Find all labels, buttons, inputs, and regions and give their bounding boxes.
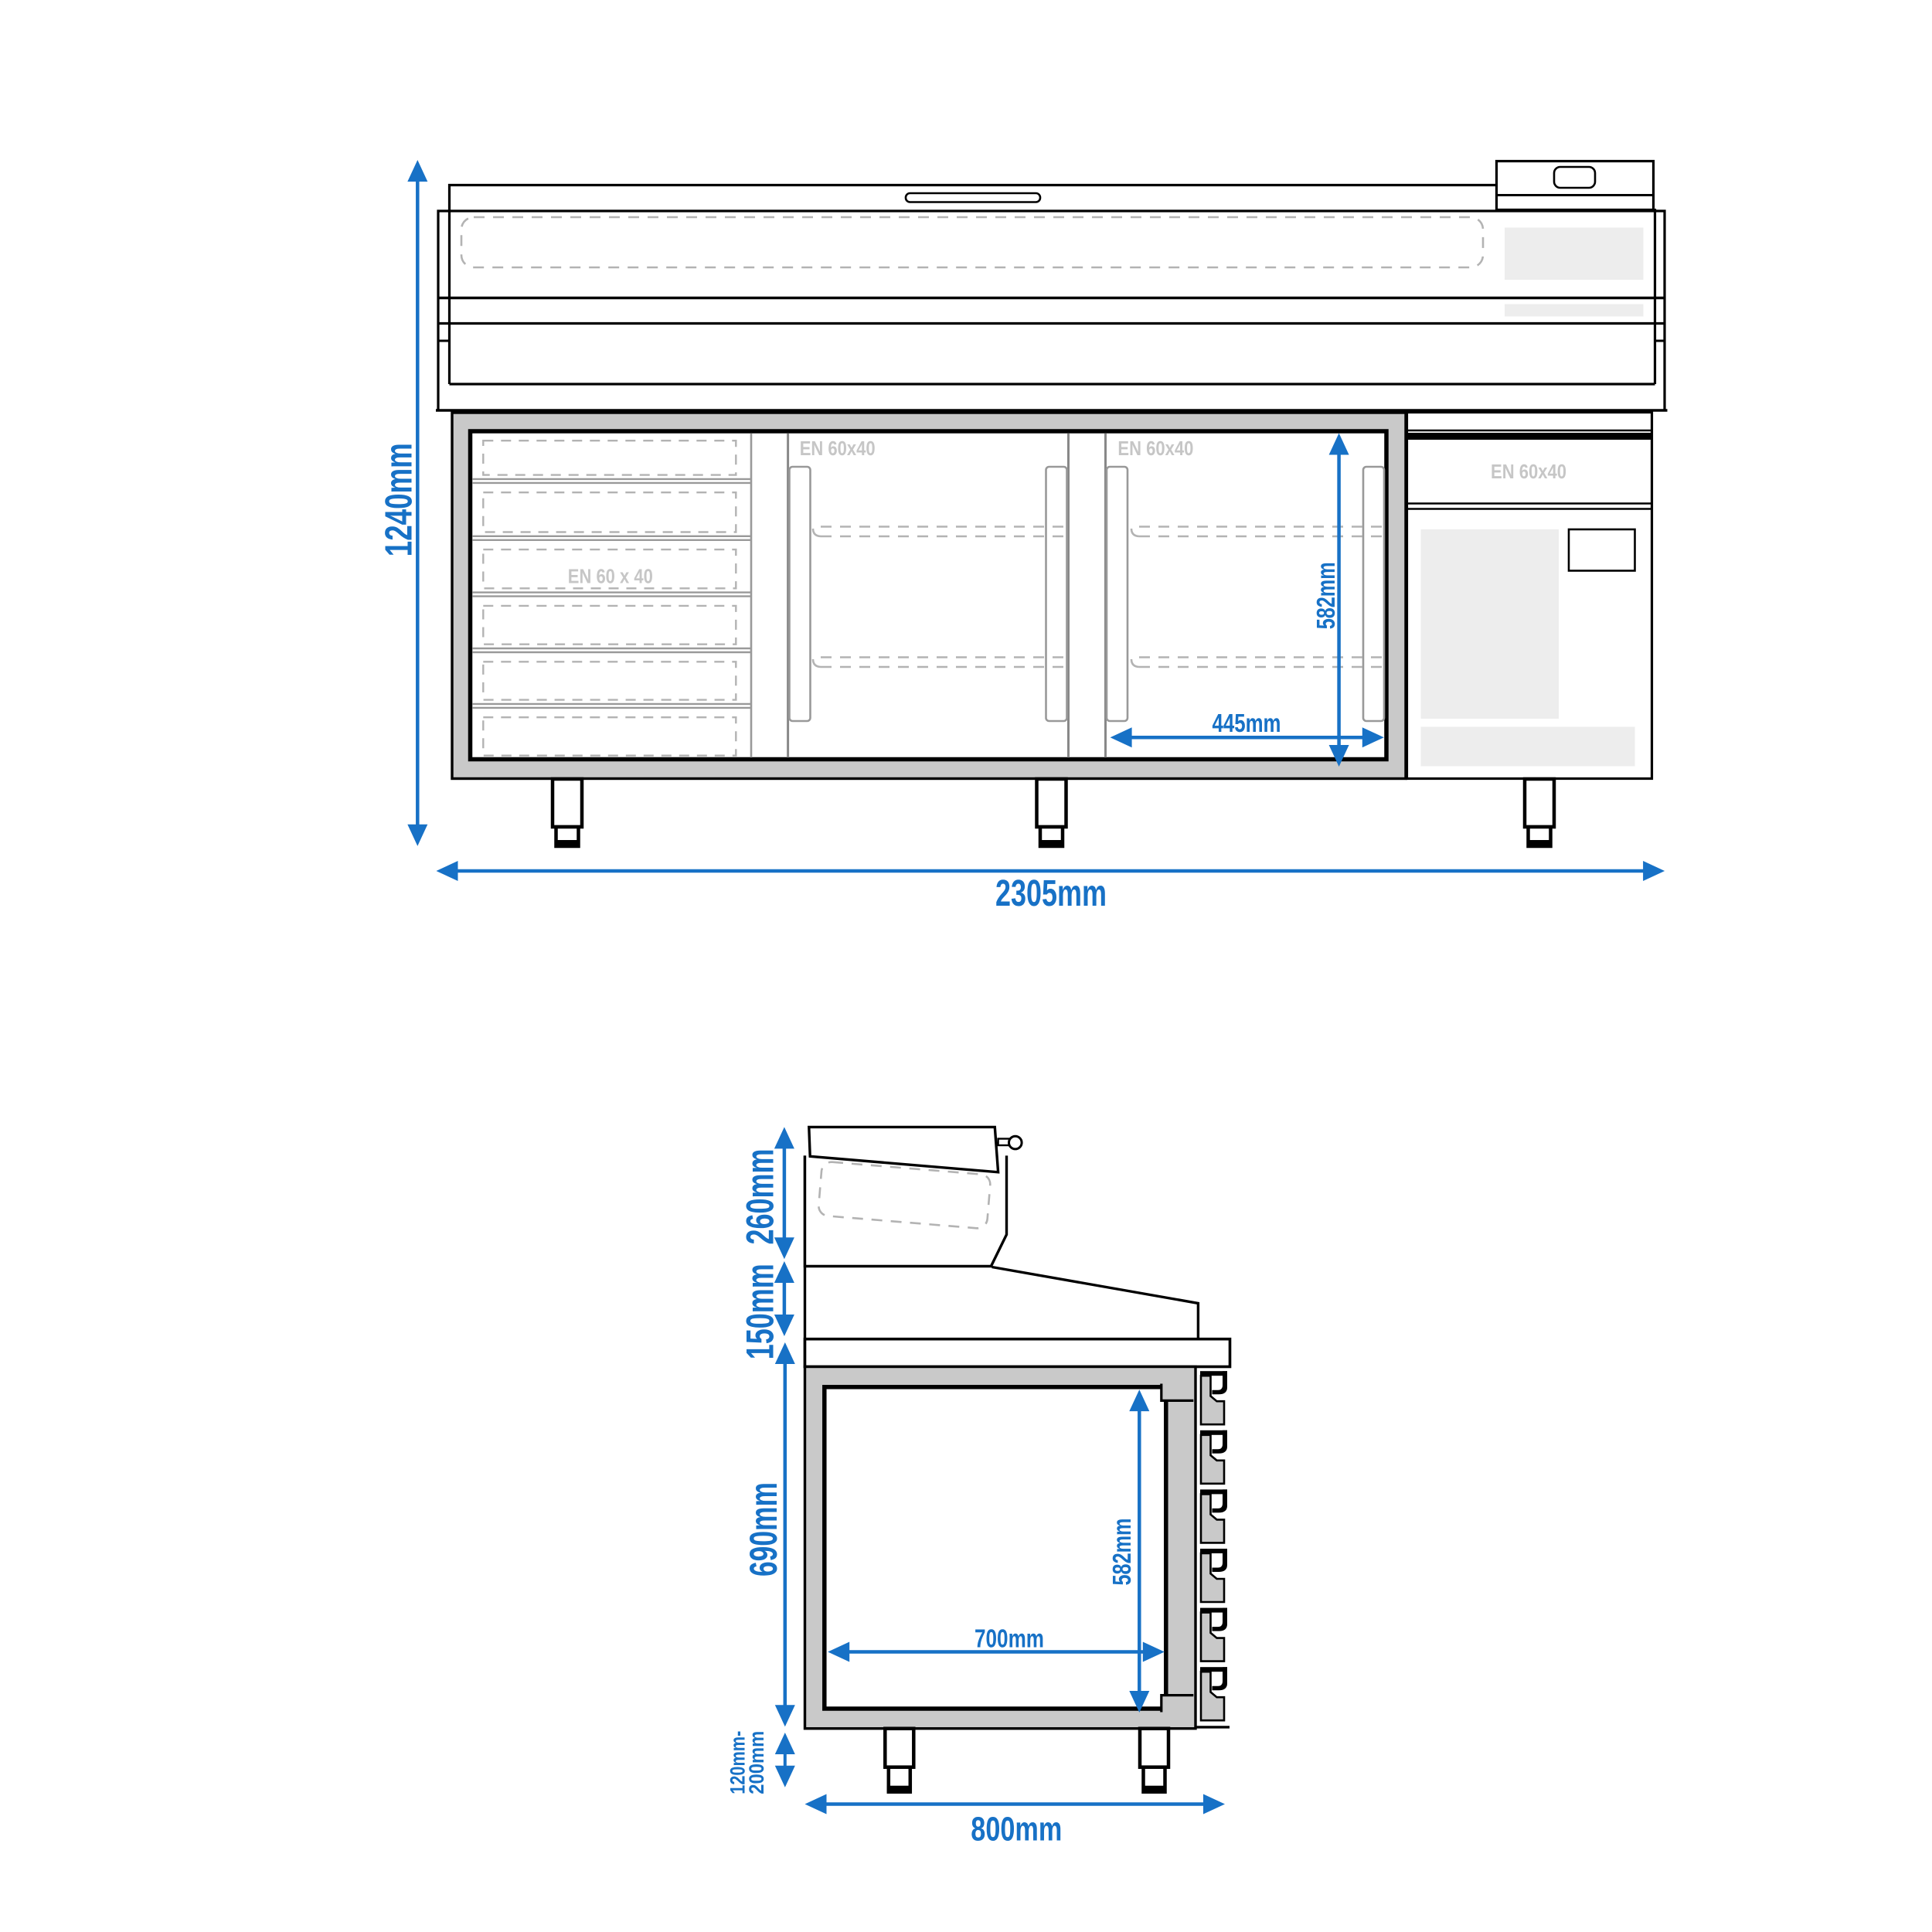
svg-text:582mm: 582mm [1107,1519,1136,1586]
svg-text:1240mm: 1240mm [377,443,420,556]
svg-text:150mm: 150mm [739,1264,782,1359]
svg-text:800mm: 800mm [971,1811,1062,1849]
svg-text:EN 60x40: EN 60x40 [800,438,876,460]
svg-text:EN 60 x 40: EN 60 x 40 [568,566,653,588]
svg-text:260mm: 260mm [739,1149,782,1245]
svg-text:582mm: 582mm [1311,562,1340,629]
svg-text:445mm: 445mm [1213,709,1281,738]
svg-text:EN 60x40: EN 60x40 [1491,461,1566,483]
svg-text:690mm: 690mm [742,1482,785,1577]
svg-text:200mm: 200mm [745,1731,768,1794]
svg-text:2305mm: 2305mm [995,873,1107,914]
svg-text:700mm: 700mm [975,1625,1044,1654]
svg-text:EN 60x40: EN 60x40 [1117,438,1193,460]
